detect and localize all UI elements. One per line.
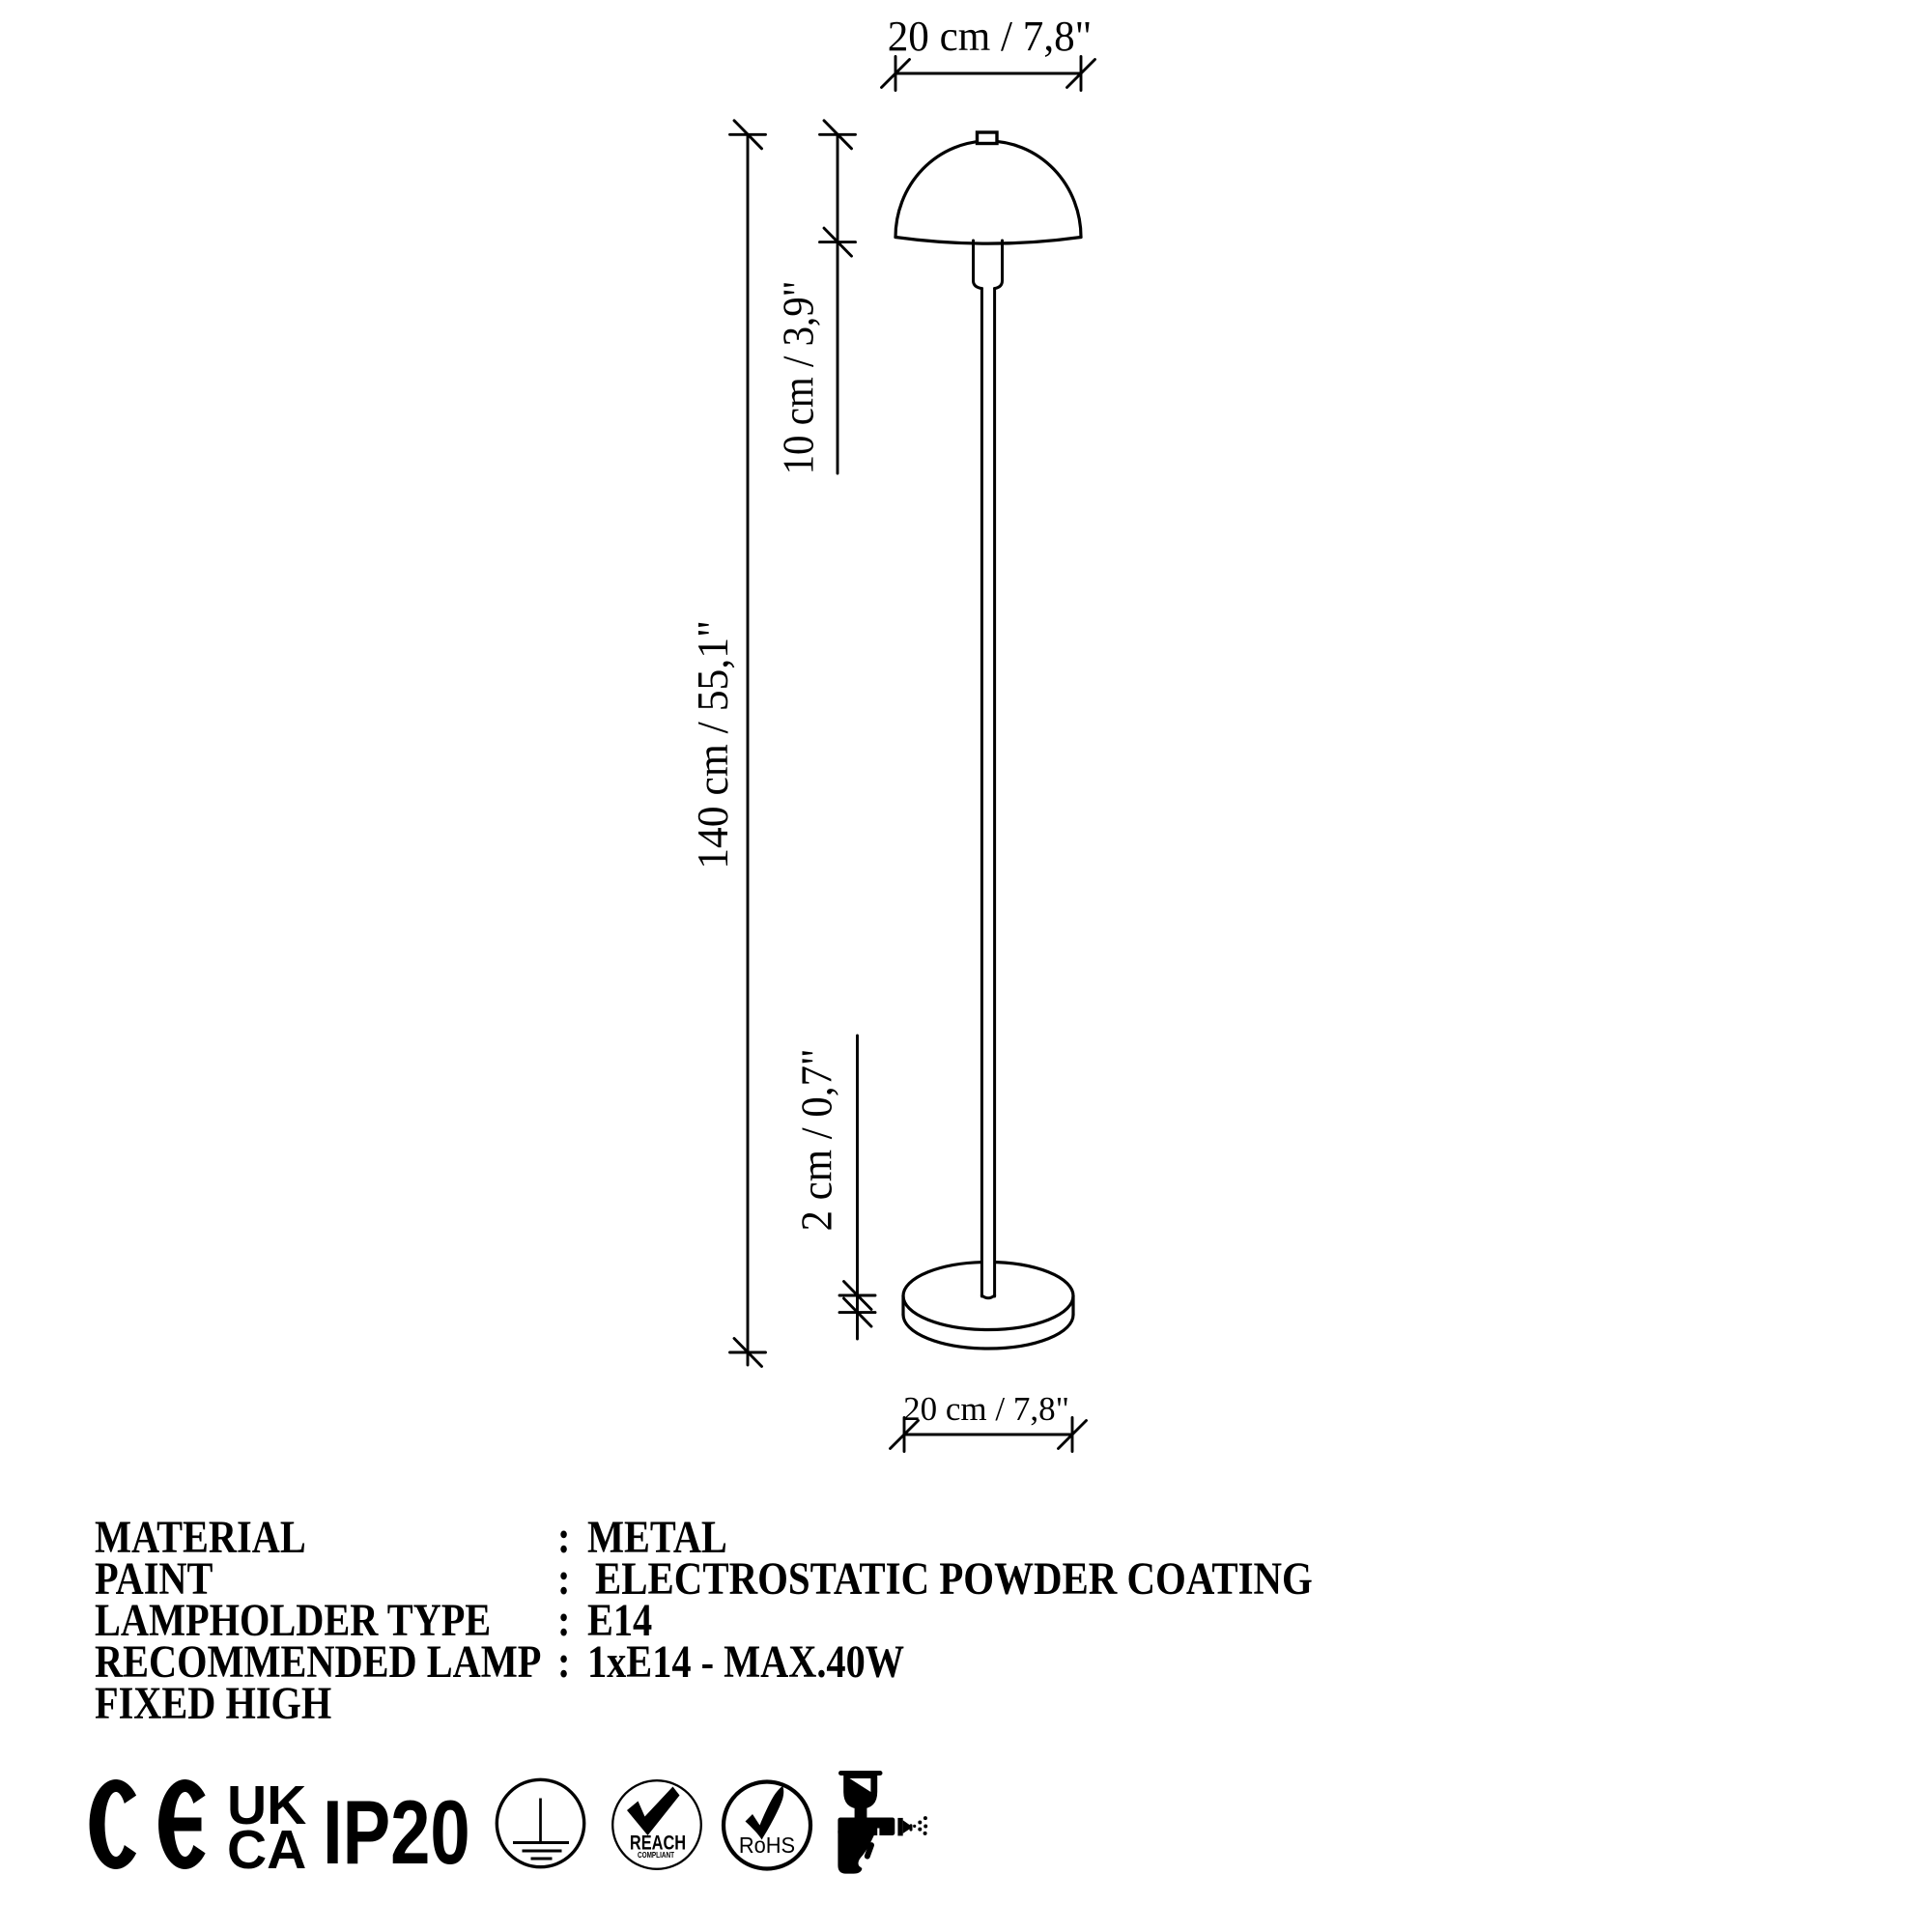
svg-text:COMPLIANT: COMPLIANT xyxy=(638,1850,675,1860)
svg-text:20 cm / 7,8": 20 cm / 7,8" xyxy=(888,14,1093,60)
svg-text:10 cm / 3,9": 10 cm / 3,9" xyxy=(774,281,823,475)
svg-text::: : xyxy=(557,1636,570,1688)
svg-text:20 cm / 7,8": 20 cm / 7,8" xyxy=(903,1390,1069,1428)
svg-text:CA: CA xyxy=(227,1819,306,1881)
svg-text:ELECTROSTATIC POWDER COATING: ELECTROSTATIC POWDER COATING xyxy=(595,1552,1313,1605)
svg-text:RoHS: RoHS xyxy=(739,1833,795,1858)
svg-text:140 cm / 55,1": 140 cm / 55,1" xyxy=(688,620,737,869)
svg-text:2 cm / 0,7": 2 cm / 0,7" xyxy=(791,1049,841,1232)
svg-text:1xE14 - MAX.40W: 1xE14 - MAX.40W xyxy=(587,1636,904,1688)
svg-text:IP20: IP20 xyxy=(323,1781,470,1883)
svg-text:FIXED HIGH: FIXED HIGH xyxy=(95,1678,331,1729)
